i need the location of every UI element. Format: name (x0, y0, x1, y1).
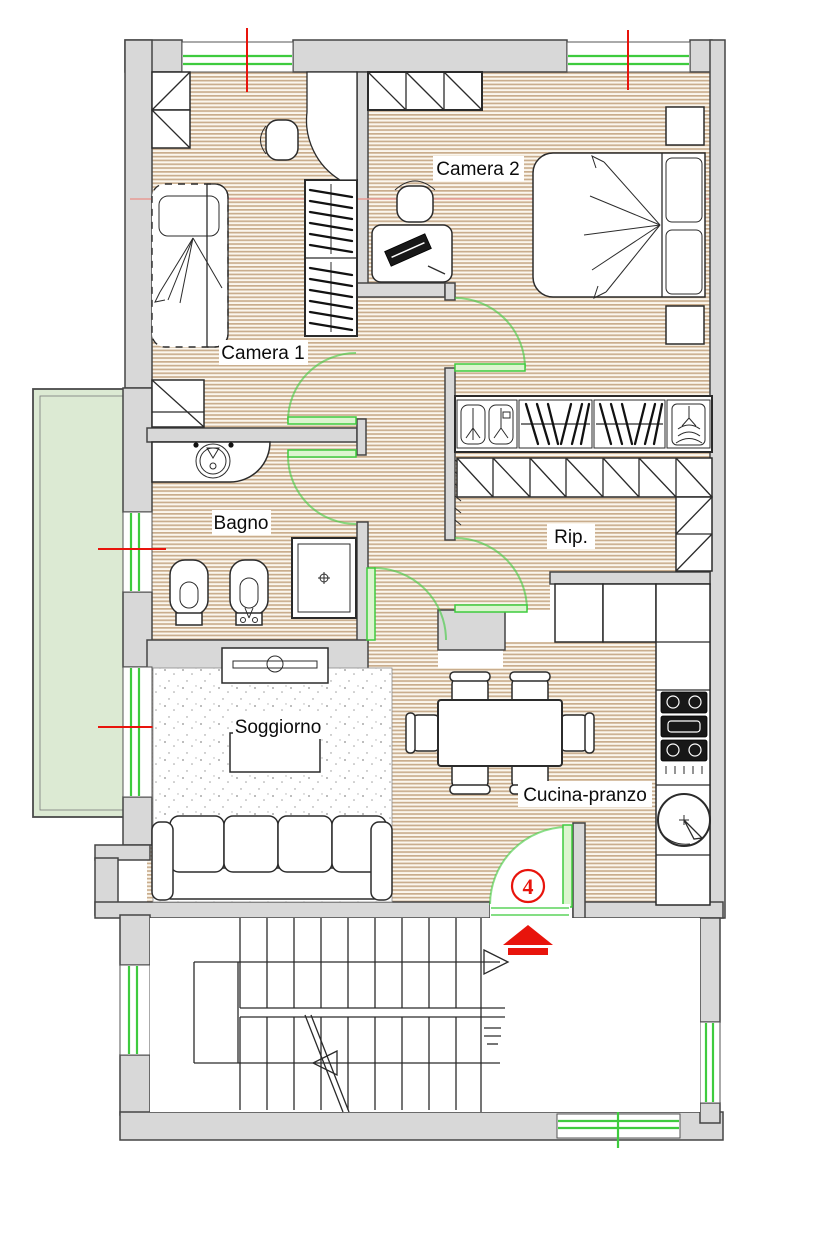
shower (292, 538, 356, 618)
dining-table (438, 700, 562, 766)
hall-floor-b (503, 642, 656, 670)
bidet (170, 560, 208, 625)
floor-plan-drawing: 4 Camera 2 Camera 1 Bagno Rip. Soggiorno… (0, 0, 814, 1242)
wall-top-b (293, 40, 567, 72)
kitchen-top-counter (555, 584, 656, 642)
window-soggiorno-balcony (123, 667, 152, 797)
soggiorno-furniture (152, 648, 392, 902)
wall-rip-kitchen (550, 572, 710, 584)
wall-top-c (690, 40, 712, 72)
rip-cabinet-column (676, 497, 712, 571)
wall-bagno-top (147, 428, 357, 442)
wall-apartment-bottom-a (95, 902, 490, 918)
wall-hall-b (438, 610, 505, 650)
desk (372, 225, 452, 282)
wall-bedroom-divider (357, 72, 368, 288)
rip-door-zone-floor (445, 540, 550, 610)
wall-stair-left-a (120, 915, 150, 965)
hall-floor-a (368, 640, 438, 670)
kitchen-sink-icon (658, 794, 710, 846)
stairwell-floor (150, 918, 700, 1112)
wall-landing-right-a (700, 918, 720, 1022)
wardrobe-double-hangers (305, 180, 357, 336)
room-label-soggiorno: Soggiorno (235, 717, 322, 738)
wall-camera2-stub (357, 283, 445, 297)
cabinet-lower-left (152, 380, 204, 427)
stairwell (150, 918, 700, 1112)
chair (406, 713, 440, 753)
wall-stair-left-b (120, 1055, 150, 1115)
sofa (152, 816, 392, 900)
kitchen-right-counter (656, 584, 710, 905)
wall-camera2-stub-cap (445, 283, 455, 300)
wardrobe-cabinet-left (152, 72, 190, 148)
wardrobe-camera2-top (368, 72, 482, 110)
double-bed (533, 153, 705, 298)
wall-left-m1 (123, 388, 152, 512)
rip-cabinet-row (457, 458, 712, 497)
room-label-rip: Rip. (554, 527, 588, 548)
toilet (230, 560, 268, 625)
wall-left-m3 (123, 797, 152, 845)
tv-sideboard (222, 648, 328, 683)
nightstand-top (666, 107, 704, 145)
sofa-armrest-right (371, 822, 392, 900)
sink-counter (152, 442, 270, 482)
floor-plan-page: 4 Camera 2 Camera 1 Bagno Rip. Soggiorno… (0, 0, 814, 1242)
room-label-bagno: Bagno (214, 513, 269, 534)
wall-rip-left (445, 368, 455, 540)
unit-number: 4 (523, 874, 534, 899)
wall-landing-right-b (700, 1103, 720, 1123)
room-label-camera1: Camera 1 (221, 343, 304, 364)
wall-left-upper (125, 40, 152, 388)
sofa-armrest-left (152, 822, 173, 900)
window-landing-right (700, 1022, 720, 1103)
nightstand-bottom (666, 306, 704, 344)
window-bagno-balcony (123, 512, 152, 592)
chair (560, 713, 594, 753)
window-stairwell-left (120, 965, 150, 1055)
room-label-camera2: Camera 2 (436, 159, 519, 180)
single-bed (152, 184, 228, 347)
room-label-cucina: Cucina-pranzo (523, 785, 647, 806)
wall-entry-post (573, 823, 585, 918)
wall-bagno-top-nub (357, 419, 366, 455)
